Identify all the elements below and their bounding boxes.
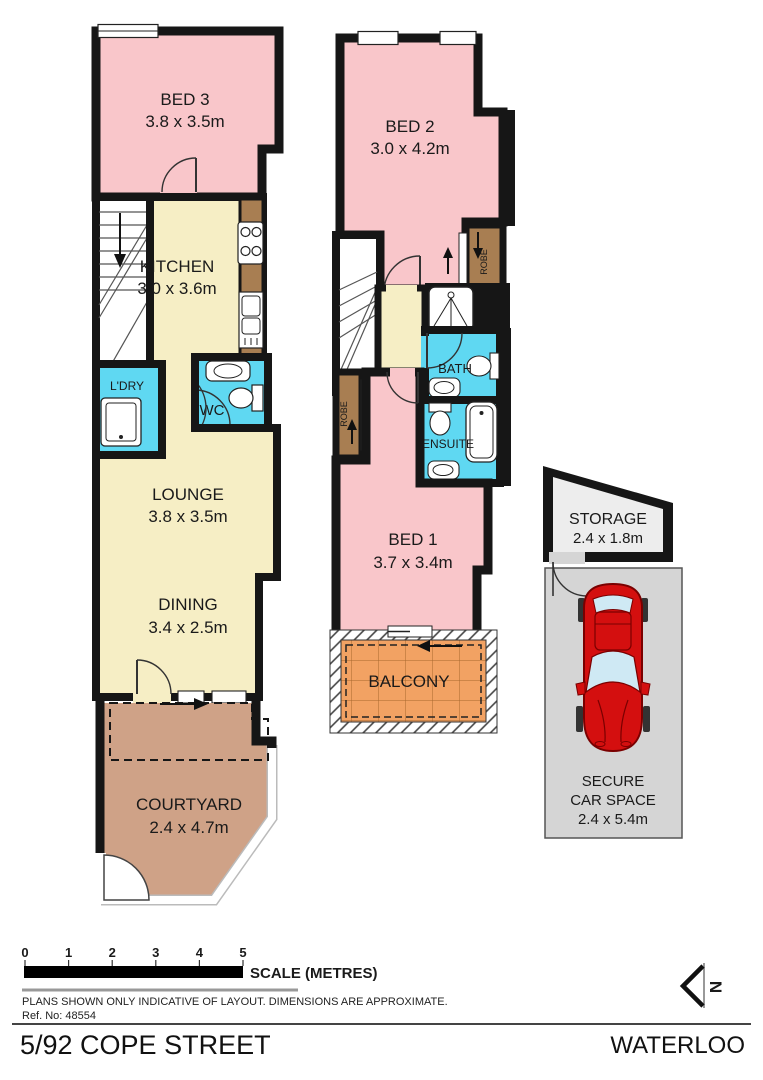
sliding-rail <box>459 233 467 285</box>
kitchen-dims: 3.0 x 3.6m <box>137 279 216 298</box>
cooktop-icon <box>238 222 263 264</box>
bed3-dims: 3.8 x 3.5m <box>145 112 224 131</box>
floorplan-page: BED 3 3.8 x 3.5m <box>0 0 763 1080</box>
window <box>358 32 398 45</box>
basin-icon <box>429 378 460 397</box>
scale-bar: 0 1 2 3 4 5 SCALE (METRES) PLANS SHOWN O… <box>21 945 447 1022</box>
room-ensuite: ENSUITE <box>414 400 500 483</box>
bed2-label: BED 2 <box>385 117 434 136</box>
bed1-label: BED 1 <box>388 530 437 549</box>
carspace-dims: 2.4 x 5.4m <box>578 811 648 828</box>
floorplan-drawing: BED 3 3.8 x 3.5m <box>0 0 763 1080</box>
scale-bar-rule <box>24 966 243 978</box>
laundry-tub-icon <box>101 398 141 446</box>
ensuite-label: ENSUITE <box>422 437 474 451</box>
car-mirror <box>576 682 585 695</box>
toilet-icon <box>429 403 451 435</box>
carspace-label-2: CAR SPACE <box>570 792 656 809</box>
wc-label: WC <box>200 402 225 419</box>
storage-label: STORAGE <box>569 511 647 528</box>
balcony-label: BALCONY <box>368 672 449 691</box>
courtyard-label: COURTYARD <box>136 795 242 814</box>
ground-floor-plan: BED 3 3.8 x 3.5m <box>94 25 279 901</box>
scale-tick-0: 0 <box>21 945 28 960</box>
scale-tick-5: 5 <box>239 945 246 960</box>
robe-bed2-label: ROBE <box>479 249 489 275</box>
storage-dims: 2.4 x 1.8m <box>573 530 643 547</box>
bed2-dims: 3.0 x 4.2m <box>370 139 449 158</box>
landing <box>378 285 425 372</box>
bed3-label: BED 3 <box>160 90 209 109</box>
sink-icon <box>239 292 263 348</box>
north-label: N <box>706 981 725 993</box>
bathtub-icon <box>466 402 497 462</box>
robe-bed1-label: ROBE <box>339 401 349 427</box>
scale-label: SCALE (METRES) <box>250 965 378 982</box>
room-laundry: L'DRY <box>96 364 162 458</box>
scale-tick-2: 2 <box>109 945 116 960</box>
window <box>212 691 246 703</box>
ref-number: Ref. No: 48554 <box>22 1010 96 1022</box>
lounge-dims: 3.8 x 3.5m <box>148 507 227 526</box>
basin-icon <box>428 461 459 479</box>
address-text: 5/92 COPE STREET <box>20 1030 271 1060</box>
dining-label: DINING <box>158 595 218 614</box>
car-mirror <box>641 682 650 695</box>
upper-floor-plan: BED 2 3.0 x 4.2m ROBE <box>330 32 515 734</box>
scale-ticks <box>25 960 243 966</box>
lounge-label: LOUNGE <box>152 485 224 504</box>
carspace-label-1: SECURE <box>582 773 645 790</box>
title-block: 5/92 COPE STREET WATERLOO <box>12 1024 751 1060</box>
suburb-text: WATERLOO <box>610 1032 745 1059</box>
kitchen-label: KITCHEN <box>140 257 215 276</box>
car-icon <box>576 584 650 751</box>
bed1-dims: 3.7 x 3.4m <box>373 553 452 572</box>
car-space-plan: STORAGE 2.4 x 1.8m SECURE CAR SPACE 2.4 … <box>543 466 682 838</box>
disclaimer-text: PLANS SHOWN ONLY INDICATIVE OF LAYOUT. D… <box>22 996 448 1008</box>
north-arrow-icon: N <box>683 963 725 1008</box>
scale-tick-1: 1 <box>65 945 72 960</box>
balcony: BALCONY <box>330 626 497 733</box>
courtyard-dims: 2.4 x 4.7m <box>149 818 228 837</box>
dining-dims: 3.4 x 2.5m <box>148 618 227 637</box>
room-courtyard: COURTYARD 2.4 x 4.7m <box>94 698 272 900</box>
window <box>440 32 476 45</box>
room-kitchen: KITCHEN 3.0 x 3.6m <box>137 197 263 368</box>
laundry-label: L'DRY <box>110 379 144 393</box>
wc-basin-icon <box>206 361 250 381</box>
room-bed3: BED 3 3.8 x 3.5m <box>96 25 279 204</box>
scale-tick-4: 4 <box>196 945 204 960</box>
bath-label: BATH <box>438 361 472 376</box>
scale-tick-3: 3 <box>152 945 159 960</box>
